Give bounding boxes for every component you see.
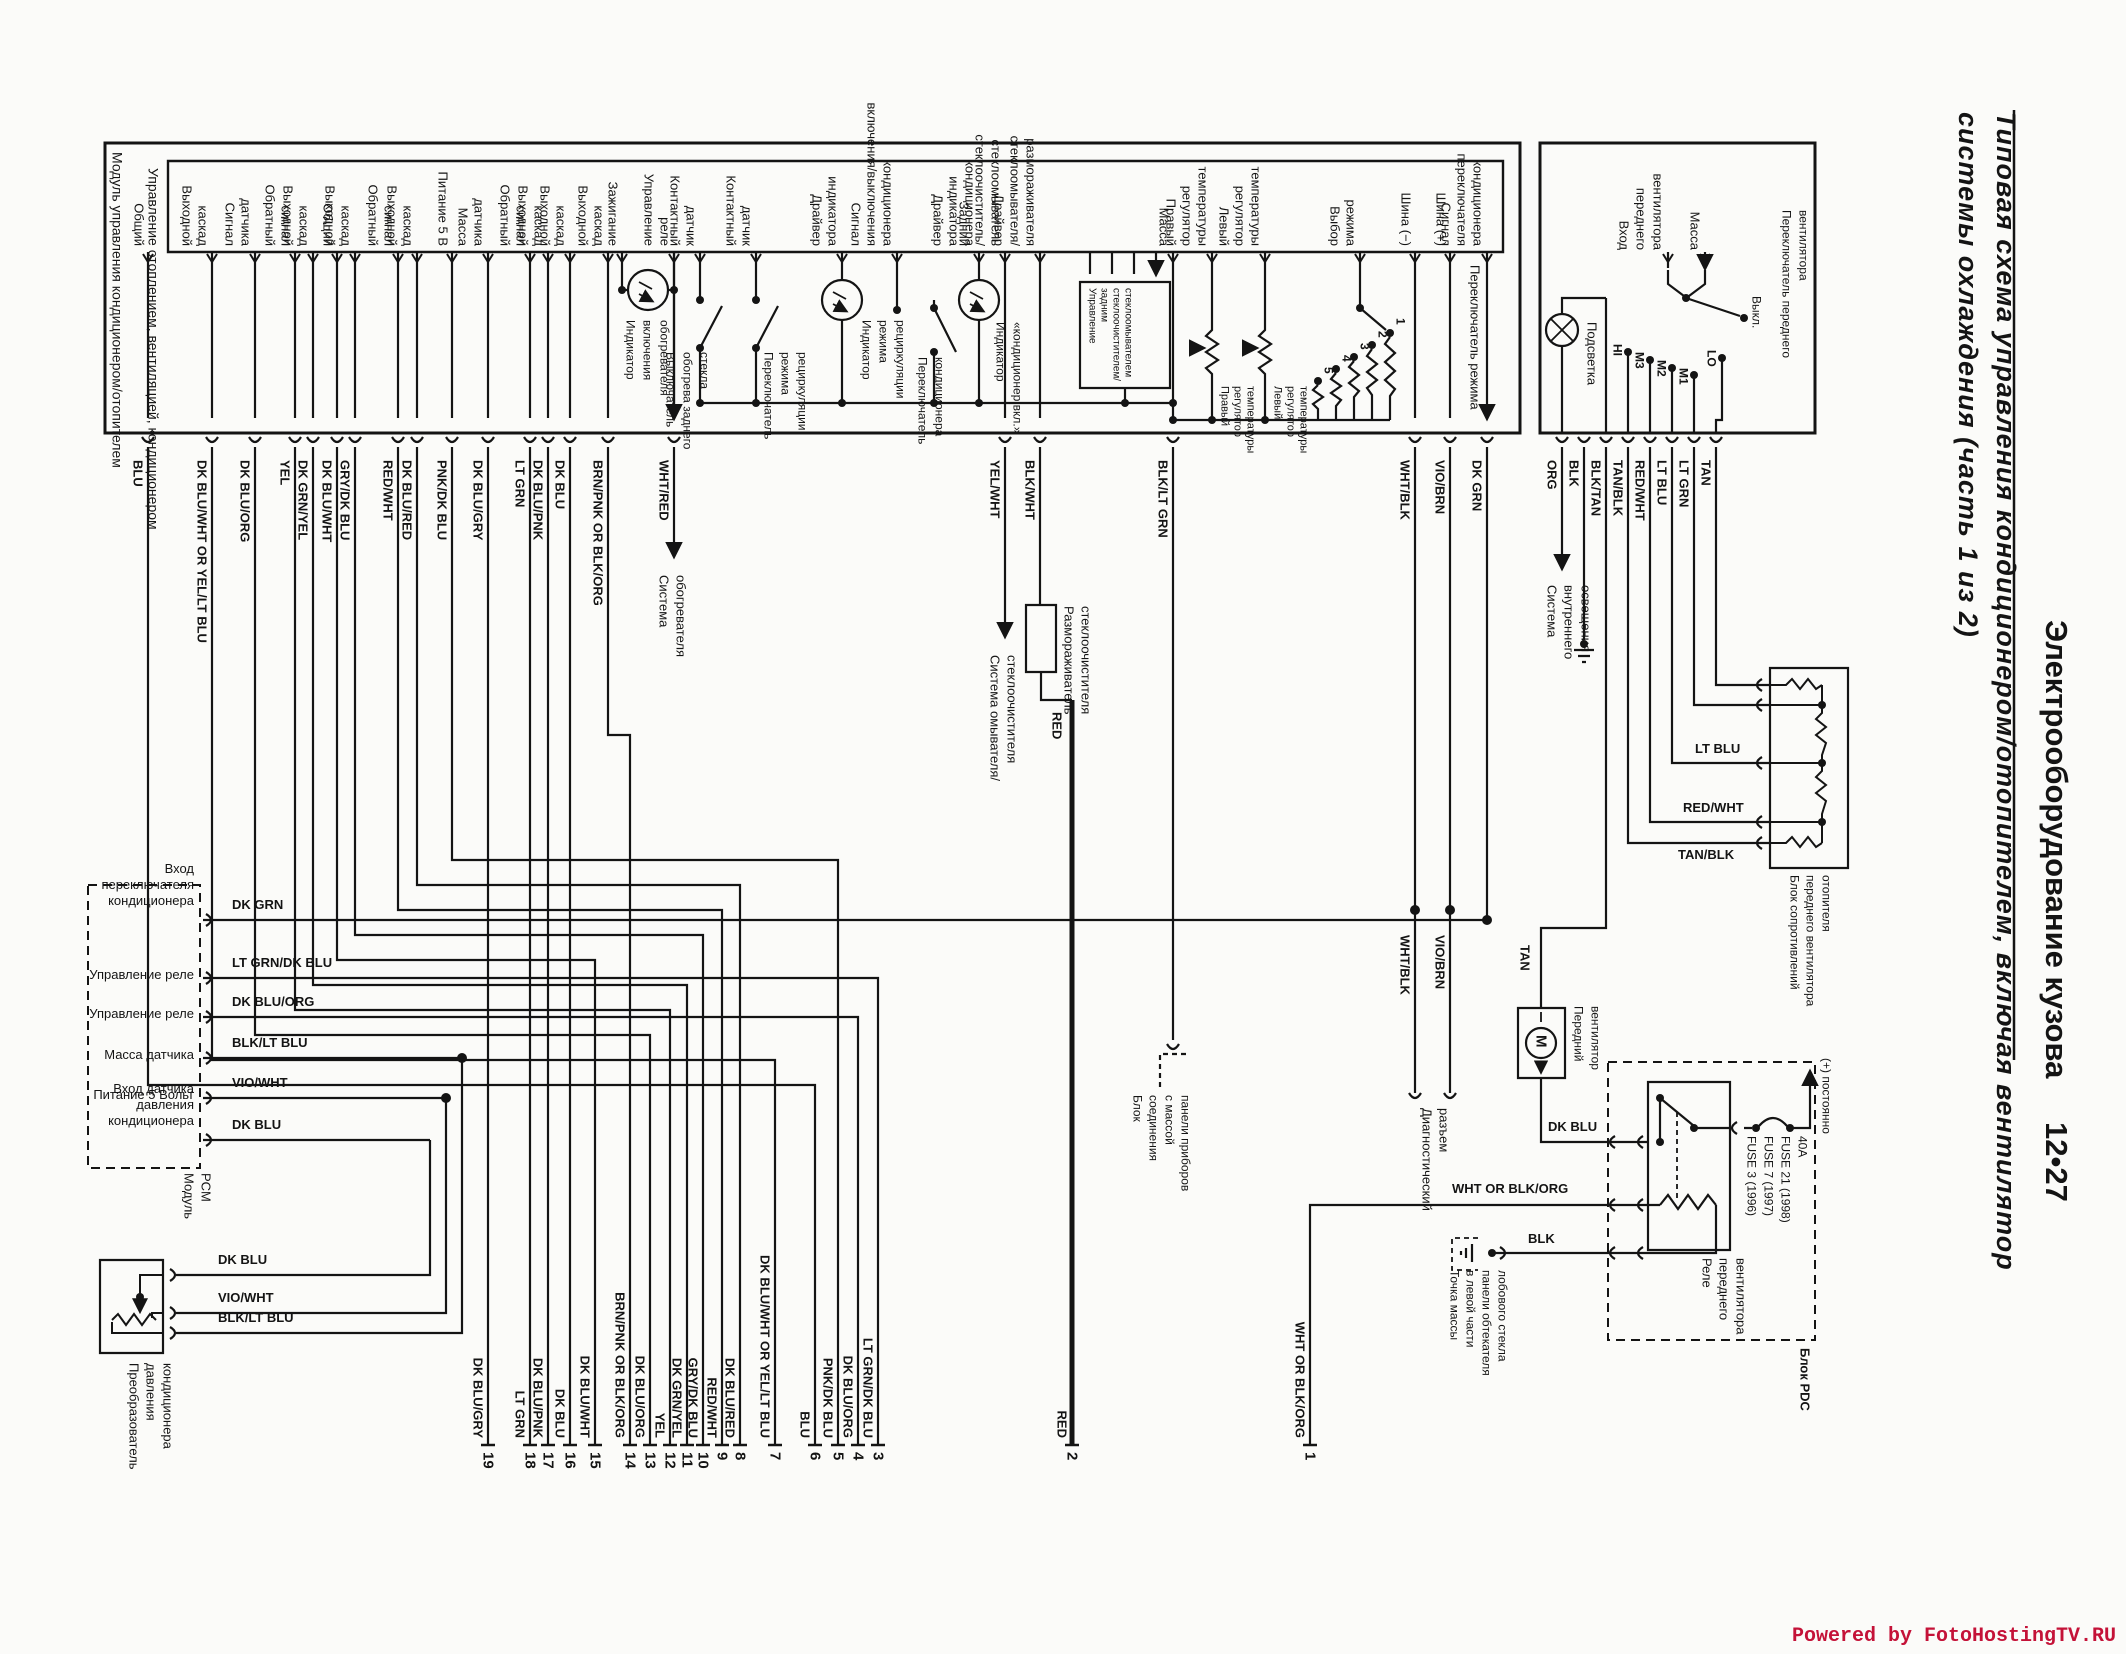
module-pin-label: Питание 5 В [436, 172, 450, 246]
terminal-color-label: RED [1055, 1411, 1069, 1438]
right-temp-label: регулятор [1231, 386, 1242, 437]
module-pin-label: Шина (−) [1399, 193, 1413, 246]
wire-color-label: GRY/DK BLU [338, 460, 352, 540]
module-pin-label: Драйвер [810, 194, 824, 246]
terminal-number: 9 [714, 1452, 730, 1460]
wire-color-label: WHT OR BLK/ORG [1452, 1182, 1568, 1196]
wire-color-label: WHT/RED [657, 460, 671, 521]
wire-color-label: YEL/WHT [988, 460, 1002, 519]
terminal-number: 2 [1064, 1452, 1080, 1460]
fuse-label: 40A [1796, 1136, 1808, 1157]
terminal-number: 7 [767, 1452, 783, 1460]
watermark-footer: Powered by FotoHostingTV.RU [1792, 1625, 2116, 1648]
module-pin-label: каскад [554, 206, 568, 247]
terminal-color-label: YEL [653, 1413, 667, 1438]
module-pin-label: индикатора [826, 176, 840, 246]
rear-defog-switch-label: стекла [698, 352, 710, 389]
ac-on-indicator-label: Индикатор [994, 322, 1006, 382]
terminal-number: 10 [695, 1452, 711, 1469]
page-title-line1: Типовая схема управления кондиционером/о… [1990, 112, 2021, 1271]
ac-on-indicator-label: «кондиционер вкл.» [1011, 322, 1023, 433]
terminal-color-label: DK BLU/PNK [531, 1358, 545, 1438]
wire-color-label: VIO/WHT [232, 1076, 288, 1090]
resistor-block-label: переднего вентилятора [1804, 875, 1816, 1006]
module-pin-label: Задний [957, 202, 971, 246]
fan-lo: LO [1705, 350, 1717, 367]
mode-position-5: 5 [1322, 367, 1334, 374]
wire-color-label: TAN/BLK [1611, 460, 1625, 516]
wire-color-label: PNK/DK BLU [435, 460, 449, 540]
fuse-label: FUSE 7 (1997) [1762, 1136, 1774, 1216]
wire-color-label: RED/WHT [1633, 460, 1647, 521]
module-outer-label: Модуль управления кондиционером/отопител… [110, 152, 125, 468]
rear-wiper-box-label: задним [1098, 288, 1108, 322]
module-pin-label: каскад [297, 206, 311, 247]
fan-input-pin: Вход [1617, 221, 1631, 250]
wire-color-label: DK BLU/ORG [238, 460, 252, 542]
module-pin-label: Сигнал [849, 203, 863, 246]
wire-color-label: DK GRN [232, 898, 283, 912]
module-pin-label: Контактный [724, 175, 738, 246]
pcm-pin-label: кондиционера [108, 1114, 194, 1128]
front-fan-label: Передний [1572, 1006, 1584, 1061]
mode-position-1: 1 [1394, 318, 1406, 325]
wire-color-label: DK BLU/GRY [471, 460, 485, 540]
wire-color-label: DK BLU [232, 1118, 281, 1132]
terminal-number: 1 [1302, 1452, 1318, 1460]
illumination-label: Подсветка [1585, 322, 1599, 385]
transducer-label: кондиционера [161, 1363, 175, 1449]
pcm-pin-label: Управление реле [89, 1007, 194, 1021]
recirc-indicator-label: режима [877, 320, 889, 363]
battery-plus-label: (+) постоянно [1820, 1058, 1832, 1134]
recirc-switch-label: Переключатель [762, 352, 774, 439]
fan-switch-label: Переключатель переднего [1780, 210, 1792, 358]
diagram-labels: Модуль управления кондиционером/отопител… [0, 0, 2126, 1654]
transducer-label: давления [144, 1363, 158, 1421]
module-pin-label: Драйвер [931, 194, 945, 246]
section-header: Электрооборудование кузова [2038, 620, 2074, 1078]
module-pin-label: датчика [239, 198, 253, 246]
terminal-number: 13 [642, 1452, 658, 1469]
washer-system-label: стеклоочистителя [1005, 655, 1019, 763]
module-pin-label: регулятор [1180, 186, 1194, 246]
module-pin-label: режима [1344, 200, 1358, 246]
wire-color-label: BLK/LT BLU [218, 1311, 294, 1325]
rear-wiper-box-label: стеклоочистителем/ [1110, 288, 1120, 381]
terminal-color-label: DK BLU/ORG [841, 1356, 855, 1438]
module-pin-label: кондиционера [1471, 160, 1485, 246]
wire-color-label: DK GRN [1470, 460, 1484, 511]
module-pin-label: Сигнал [223, 203, 237, 246]
wire-color-label: LT BLU [1655, 460, 1669, 505]
wire-color-label: BLK/TAN [1589, 460, 1603, 516]
wire-color-label: RED/WHT [1683, 801, 1744, 815]
heater-indicator-label: Индикатор [624, 320, 636, 380]
mode-position-2: 2 [1376, 331, 1388, 338]
wire-color-label: YEL [278, 460, 292, 485]
wire-color-label: BLK [1528, 1232, 1555, 1246]
module-pin-label: Сигнал [1439, 203, 1453, 246]
rear-defog-switch-label: обогрева заднего [681, 352, 693, 449]
terminal-color-label: DK BLU/GRY [471, 1358, 485, 1438]
terminal-number: 3 [870, 1452, 886, 1460]
module-pin-label: датчик [740, 206, 754, 246]
terminal-number: 12 [662, 1452, 678, 1469]
left-temp-label: регулятор [1284, 386, 1295, 437]
interior-light-label: освещения [1579, 585, 1593, 652]
ground-block-label: панели приборов [1179, 1095, 1191, 1191]
terminal-color-label: DK BLU [553, 1389, 567, 1438]
fan-switch-label: вентилятора [1797, 210, 1809, 281]
mode-position-3: 3 [1358, 343, 1370, 350]
heater-system-label: Система [657, 575, 671, 627]
pdc-label: Блок PDC [1798, 1348, 1812, 1411]
module-pin-label: температуры [1196, 167, 1210, 246]
module-pin-label: каскад [196, 206, 210, 247]
fan-relay-label: Реле [1700, 1258, 1714, 1288]
wire-color-label: RED [1050, 712, 1064, 739]
module-pin-label: Общий [132, 203, 146, 246]
fan-relay-label: вентилятора [1734, 1258, 1748, 1335]
module-pin-label: Выходной [538, 185, 552, 246]
pcm-label: Модуль [182, 1173, 196, 1219]
interior-light-label: Система [1545, 585, 1559, 637]
terminal-number: 18 [522, 1452, 538, 1469]
terminal-color-label: LT GRN/DK BLU [861, 1338, 875, 1438]
module-pin-label: каскад [592, 206, 606, 247]
module-pin-label: Зажигание [606, 182, 620, 246]
rear-wiper-box-label: стеклоомывателем [1122, 288, 1132, 377]
terminal-color-label: BLU [798, 1411, 812, 1438]
mode-switch-label: Переключатель режима [1468, 265, 1482, 410]
wire-color-label: VIO/WHT [218, 1291, 274, 1305]
module-pin-label: Правый [1164, 199, 1178, 246]
wire-color-label: BLK/WHT [1023, 460, 1037, 520]
wire-color-label: ORG [1545, 460, 1559, 490]
terminal-color-label: DK GRN/YEL [670, 1358, 684, 1438]
pcm-pin-label: Масса датчика [104, 1048, 194, 1062]
terminal-number: 11 [679, 1452, 695, 1468]
left-temp-label: температуры [1297, 386, 1308, 453]
terminal-color-label: RED/WHT [705, 1377, 719, 1438]
wire-color-label: TAN/BLK [1678, 848, 1734, 862]
fan-input-pin: вентилятора [1651, 173, 1665, 250]
fuse-label: FUSE 3 (1996) [1745, 1136, 1757, 1216]
fan-ground-pin: Масса [1688, 212, 1702, 250]
pcm-pin-label: Вход [165, 862, 194, 876]
wire-color-label: WHT/BLK [1398, 935, 1412, 995]
wire-color-label: DK BLU/WHT [320, 460, 334, 542]
terminal-color-label: PNK/DK BLU [821, 1358, 835, 1438]
right-temp-label: Правый [1218, 386, 1229, 426]
washer-system-label: Система омывателя/ [988, 655, 1002, 781]
terminal-number: 15 [587, 1452, 603, 1469]
wire-color-label: TAN [1518, 945, 1532, 971]
module-pin-label: каскад [339, 206, 353, 247]
pcm-pin-label: переключателя [101, 878, 194, 892]
module-pin-label: Выходной [180, 185, 194, 246]
heater-indicator-label: включения [641, 320, 653, 380]
terminal-number: 6 [807, 1452, 823, 1460]
module-pin-label: Выходной [516, 185, 530, 246]
module-pin-label: Выходной [385, 185, 399, 246]
wire-color-label: DK BLU/ORG [232, 995, 314, 1009]
wiper-deicer-label: стеклоочистителя [1079, 606, 1093, 714]
terminal-number: 8 [732, 1452, 748, 1460]
ground-block-label: соединения [1147, 1095, 1159, 1161]
recirc-indicator-label: Индикатор [860, 320, 872, 380]
module-pin-label: включения/выключения [865, 102, 879, 246]
fuse-label: FUSE 21 (1998) [1779, 1136, 1791, 1223]
recirc-indicator-label: рециркуляции [894, 320, 906, 399]
ground-point-label: панели обтекателя [1480, 1270, 1492, 1376]
module-pin-label: кондиционера [881, 160, 895, 246]
module-pin-label: регулятор [1233, 186, 1247, 246]
page-number: 12•27 [2038, 1122, 2074, 1202]
module-pin-label: Выбор [1328, 206, 1342, 246]
module-pin-label: Обратный [366, 185, 380, 246]
ac-switch-label: Переключатель [916, 357, 928, 444]
module-pin-label: стеклоочиститель/ [973, 134, 987, 246]
wire-color-label: BLK/LT BLU [232, 1036, 308, 1050]
fan-relay-label: переднего [1717, 1258, 1731, 1320]
module-inner-label: Управление отоплением, вентиляцией, конд… [146, 168, 161, 530]
module-pin-label: размораживателя [1024, 138, 1038, 246]
wire-color-label: BLU [131, 460, 145, 487]
terminal-color-label: DK BLU/WHT OR YEL/LT BLU [758, 1255, 772, 1438]
module-pin-label: датчика [472, 198, 486, 246]
terminal-color-label: LT GRN [513, 1391, 527, 1438]
wire-color-label: WHT/BLK [1398, 460, 1412, 520]
wire-color-label: LT GRN/DK BLU [232, 956, 332, 970]
wire-color-label: RED/WHT [381, 460, 395, 521]
terminal-number: 19 [480, 1452, 496, 1469]
terminal-number: 16 [562, 1452, 578, 1469]
wire-color-label: BLK/LT GRN [1156, 460, 1170, 538]
ground-block-label: с массой [1163, 1095, 1175, 1145]
terminal-number: 14 [622, 1452, 638, 1469]
diagnostic-connector-label: Диагностический [1420, 1108, 1434, 1211]
diagnostic-connector-label: разъем [1437, 1108, 1451, 1152]
wire-color-label: LT GRN [513, 460, 527, 507]
module-pin-label: температуры [1249, 167, 1263, 246]
rear-defog-switch-label: Выключатель [664, 352, 676, 427]
pcm-pin-label: кондиционера [108, 894, 194, 908]
module-pin-label: Выходной [281, 185, 295, 246]
wire-color-label: VIO/BRN [1433, 460, 1447, 514]
recirc-switch-label: рециркуляции [796, 352, 808, 431]
terminal-number: 4 [850, 1452, 866, 1460]
ground-point-label: Точка массы [1448, 1270, 1460, 1340]
module-pin-label: Выходной [323, 185, 337, 246]
wire-color-label: DK GRN/YEL [296, 460, 310, 540]
terminal-color-label: DK BLU/WHT [578, 1356, 592, 1438]
left-temp-label: Левый [1271, 386, 1282, 419]
mode-position-4: 4 [1340, 355, 1352, 362]
ground-point-label: в левой части [1464, 1270, 1476, 1347]
wire-color-label: DK BLU/WHT OR YEL/LT BLU [195, 460, 209, 643]
terminal-color-label: DK BLU/RED [723, 1358, 737, 1438]
wire-color-label: BLK [1567, 460, 1581, 487]
wire-color-label: BRN/PNK OR BLK/ORG [591, 460, 605, 606]
fan-off-label: Выкл. [1750, 296, 1762, 328]
fan-input-pin: переднего [1634, 188, 1648, 250]
wiper-deicer-label: Размораживатель [1062, 606, 1076, 715]
fan-m3: M3 [1633, 352, 1645, 369]
pcm-label: PCM [199, 1173, 213, 1202]
module-pin-label: переключателя [1455, 153, 1469, 246]
resistor-block-label: Блок сопротивлений [1788, 875, 1800, 990]
wire-color-label: LT BLU [1695, 742, 1740, 756]
page-title-line2: системы охлаждения (часть 1 из 2) [1952, 112, 1983, 638]
module-pin-label: Управление [642, 174, 656, 246]
module-pin-label: датчик [684, 206, 698, 246]
transducer-label: Преобразователь [127, 1363, 141, 1470]
module-pin-label: Обратный [498, 185, 512, 246]
terminal-color-label: GRY/DK BLU [686, 1358, 700, 1438]
terminal-color-label: DK BLU/ORG [633, 1356, 647, 1438]
pcm-pin-label: Управление реле [89, 968, 194, 982]
module-pin-label: Драйвер [992, 194, 1006, 246]
scanned-wiring-diagram-page: Модуль управления кондиционером/отопител… [0, 0, 2126, 1654]
module-pin-label: Выходной [576, 185, 590, 246]
fan-hi: HI [1611, 344, 1623, 356]
wire-color-label: DK BLU/RED [400, 460, 414, 540]
heater-system-label: обогревателя [674, 575, 688, 657]
ac-switch-label: кондиционера [933, 357, 945, 436]
module-pin-label: Обратный [263, 185, 277, 246]
terminal-color-label: BRN/PNK OR BLK/ORG [613, 1292, 627, 1438]
wire-color-label: DK BLU/PNK [531, 460, 545, 540]
module-pin-label: Контактный [668, 175, 682, 246]
ground-block-label: Блок [1131, 1095, 1143, 1122]
wire-color-label: DK BLU [218, 1253, 267, 1267]
terminal-number: 17 [540, 1452, 556, 1469]
pcm-pin-label: давления [136, 1098, 194, 1112]
right-temp-label: температуры [1244, 386, 1255, 453]
resistor-block-label: отопителя [1820, 875, 1832, 932]
ground-point-label: лобового стекла [1496, 1270, 1508, 1362]
wire-color-label: TAN [1699, 460, 1713, 486]
module-pin-label: каскад [401, 206, 415, 247]
interior-light-label: внутреннего [1562, 585, 1576, 659]
fan-m1: M1 [1677, 368, 1689, 385]
module-pin-label: Масса [456, 208, 470, 246]
wire-color-label: VIO/BRN [1433, 935, 1447, 989]
front-fan-label: вентилятор [1589, 1006, 1601, 1070]
module-pin-label: стеклоомывателя/ [1008, 136, 1022, 246]
wire-color-label: DK BLU [1548, 1120, 1597, 1134]
motor-m: M [1533, 1035, 1549, 1048]
wire-color-label: DK BLU [553, 460, 567, 509]
terminal-number: 5 [830, 1452, 846, 1460]
rear-wiper-box-label: Управление [1086, 288, 1096, 344]
fan-m2: M2 [1655, 360, 1667, 377]
module-pin-label: Левый [1217, 207, 1231, 246]
terminal-color-label: WHT OR BLK/ORG [1293, 1322, 1307, 1438]
wire-color-label: LT GRN [1677, 460, 1691, 507]
pcm-pin-label: Вход датчика [113, 1082, 194, 1096]
recirc-switch-label: режима [779, 352, 791, 395]
